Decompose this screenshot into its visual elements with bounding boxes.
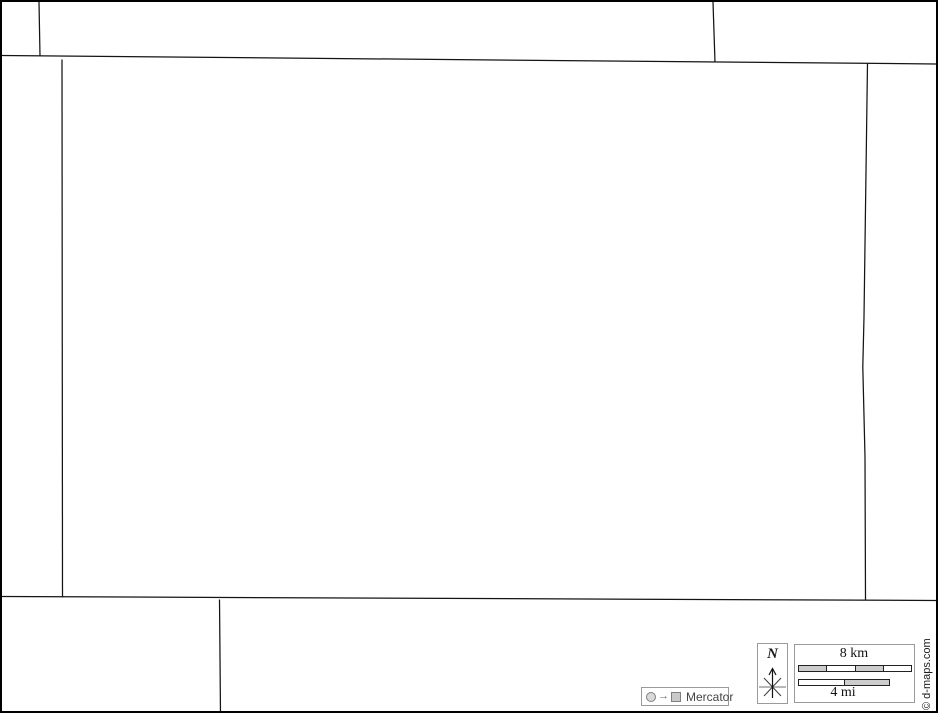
globe-icon [646, 692, 656, 702]
east-boundary-line [863, 63, 868, 600]
map-boundaries [2, 2, 938, 713]
scale-km-label: 8 km [798, 646, 910, 662]
scale-bar: 8 km 4 mi [794, 644, 915, 703]
km-bar-segment [883, 666, 911, 671]
scale-mi-label: 4 mi [798, 685, 888, 701]
arrow-right-icon: → [658, 691, 669, 702]
scale-km-bar [798, 665, 912, 672]
northeast-divider-line [713, 2, 715, 63]
southwest-divider-line [220, 600, 221, 713]
compass-north-label: N [758, 646, 787, 663]
copyright-text: © d-maps.com [921, 638, 933, 710]
west-boundary-line [62, 60, 63, 598]
north-arrow-icon [758, 664, 787, 702]
projection-indicator: → Mercator [641, 687, 729, 706]
south-boundary-line [2, 597, 938, 601]
km-bar-segment [855, 666, 883, 671]
northwest-box-divider-line [39, 2, 40, 56]
north-boundary-line [2, 56, 938, 65]
compass-rose: N [757, 643, 788, 704]
map-page: N 8 km 4 mi → Mercator © d-maps.com [0, 0, 938, 713]
km-bar-segment [799, 666, 826, 671]
km-bar-segment [826, 666, 854, 671]
flat-map-icon [671, 692, 681, 702]
projection-label: Mercator [686, 690, 733, 704]
